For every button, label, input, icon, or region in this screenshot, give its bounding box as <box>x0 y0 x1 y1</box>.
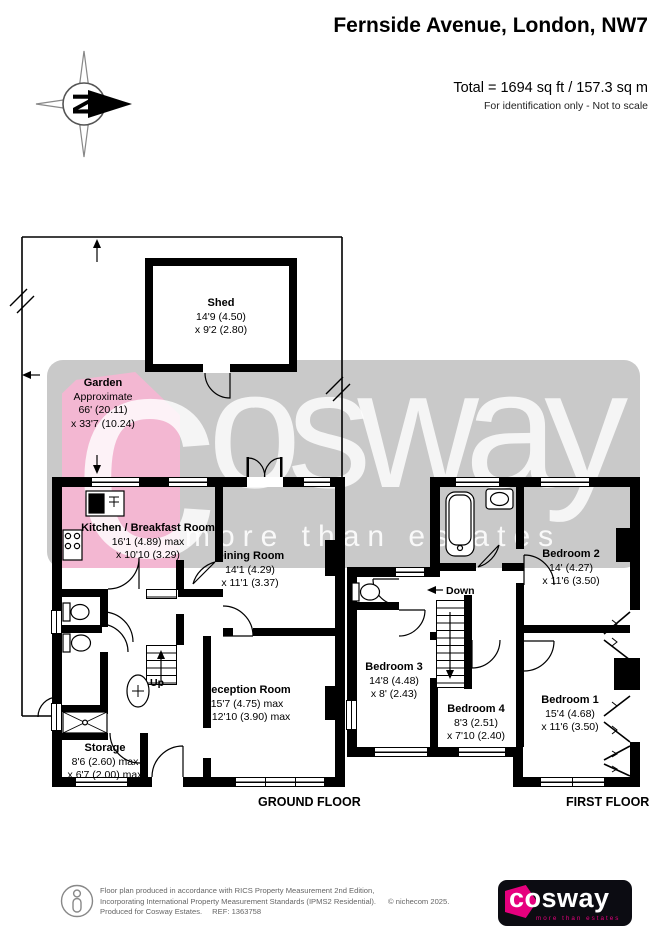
footer-disclaimer: Floor plan produced in accordance with R… <box>100 886 490 918</box>
ff-door-arcs <box>373 545 554 671</box>
compass-rose: N <box>28 48 140 160</box>
bed4-door <box>472 640 500 668</box>
down-label: Down <box>446 585 475 597</box>
first-floor-caption: FIRST FLOOR <box>566 795 649 809</box>
bed3-door <box>399 610 425 636</box>
gf-french-doors <box>247 457 283 477</box>
bedroom4-label: Bedroom 4 8'3 (2.51) x 7'10 (2.40) <box>447 703 505 744</box>
kitchen-label: Kitchen / Breakfast Room 16'1 (4.89) max… <box>81 522 215 563</box>
garden-label: Garden Approximate 66' (20.11) x 33'7 (1… <box>71 377 135 431</box>
bed1-door <box>524 641 554 671</box>
compass-letter: N <box>66 92 102 115</box>
copyright: © nichecom 2025. <box>388 897 449 906</box>
bedroom1-label: Bedroom 1 15'4 (4.68) x 11'6 (3.50) <box>541 694 598 735</box>
gf-porch-arc <box>38 697 58 717</box>
reference-number: REF: 1363758 <box>212 907 261 916</box>
sink-icon <box>127 675 149 707</box>
dining-label: Dining Room 14'1 (4.29) x 11'1 (3.37) <box>216 550 284 591</box>
shed-door-arc <box>205 373 230 398</box>
toilet-icon <box>352 583 380 601</box>
cosway-logo: cosway more than estates <box>498 880 632 926</box>
toilet-icon <box>63 634 91 652</box>
bathtub-icon <box>446 492 474 556</box>
garden-boundary <box>10 237 350 716</box>
page-title: Fernside Avenue, London, NW7 <box>333 14 648 38</box>
reception-label: Reception Room 15'7 (4.75) max x 12'10 (… <box>203 684 290 725</box>
ff-fixtures <box>352 489 513 601</box>
nichecom-person-icon <box>60 884 94 918</box>
up-label: Up <box>150 677 164 689</box>
basin-icon <box>486 489 513 509</box>
floorplan-page: c osway more than estates Fernside Avenu… <box>0 0 657 931</box>
logo-wordmark: cosway <box>509 883 610 914</box>
ground-floor-caption: GROUND FLOOR <box>258 795 361 809</box>
bedroom2-label: Bedroom 2 14' (4.27) x 11'6 (3.50) <box>542 548 599 589</box>
toilet-icon <box>63 603 89 621</box>
logo-tagline: more than estates <box>536 915 620 922</box>
bedroom3-label: Bedroom 3 14'8 (4.48) x 8' (2.43) <box>365 661 422 702</box>
identification-note: For identification only - Not to scale <box>484 100 648 112</box>
bay-windows <box>604 612 630 776</box>
total-area: Total = 1694 sq ft / 157.3 sq m <box>453 80 648 96</box>
shed-label: Shed 14'9 (4.50) x 9'2 (2.80) <box>195 297 247 338</box>
fence-break-right <box>326 377 350 401</box>
storage-label: Storage 8'6 (2.60) max x 6'7 (2.00) max <box>68 742 143 783</box>
bathroom-door <box>478 545 499 567</box>
shower-tray <box>63 712 107 733</box>
